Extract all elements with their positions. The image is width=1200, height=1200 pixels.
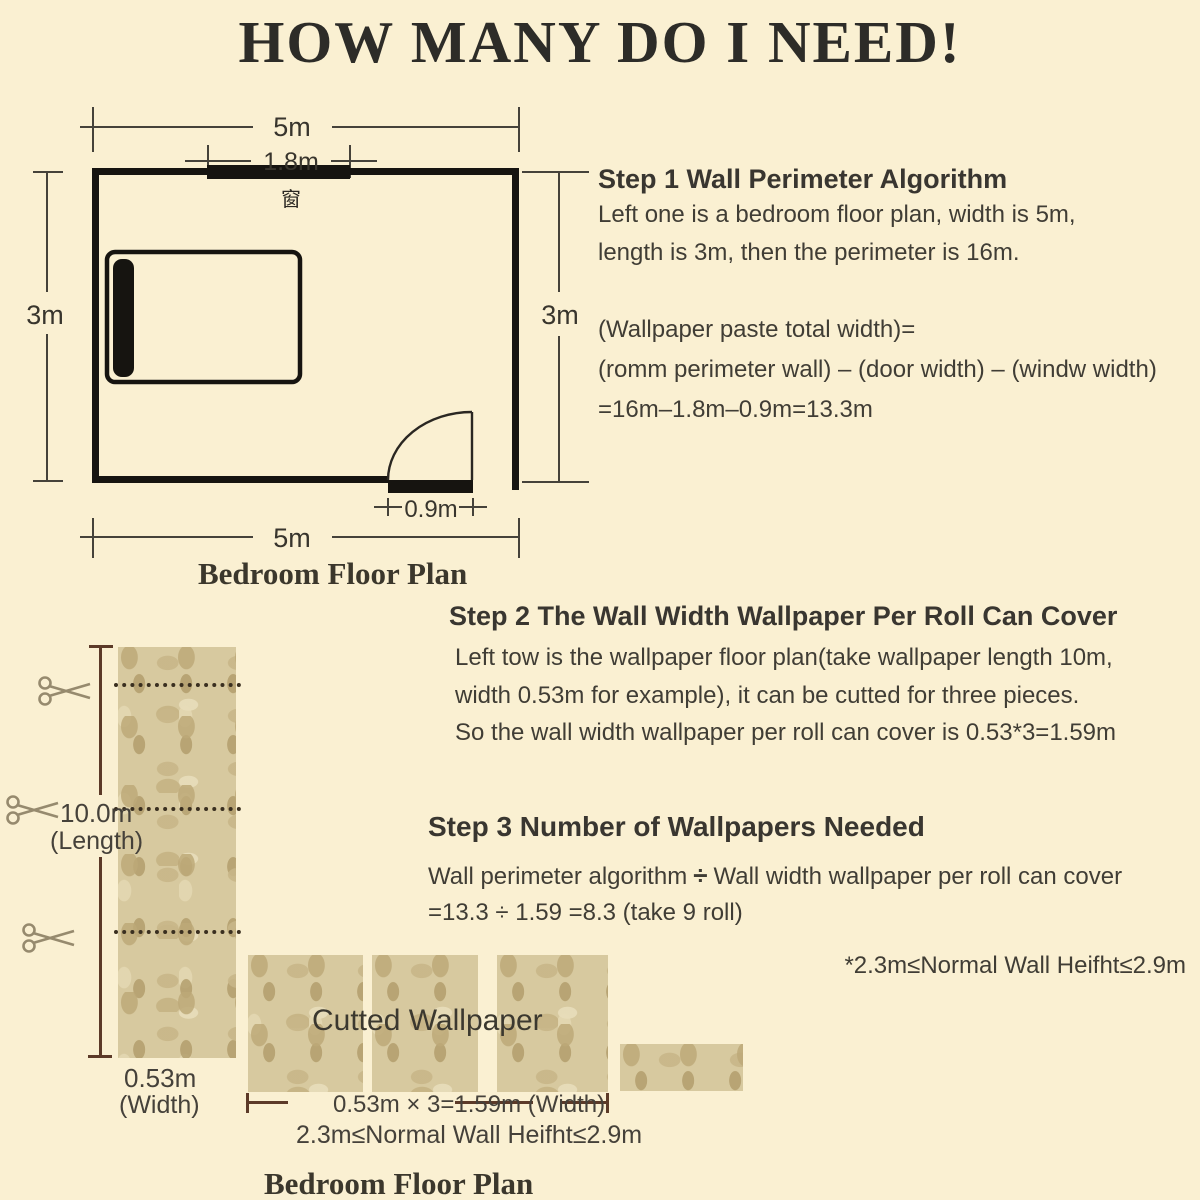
step1-heading: Step 1 Wall Perimeter Algorithm xyxy=(598,164,1007,195)
scissors-icon xyxy=(36,672,94,710)
scissors-icon xyxy=(4,791,62,829)
wall-right xyxy=(512,168,519,490)
room-walls xyxy=(92,165,519,493)
roll-width-sub: (Width) xyxy=(119,1091,200,1120)
step2-line2: width 0.53m for example), it can be cutt… xyxy=(455,682,1079,710)
floorplan-caption: Bedroom Floor Plan xyxy=(198,556,467,592)
step3-heading: Step 3 Number of Wallpapers Needed xyxy=(428,811,925,843)
door-arc xyxy=(388,412,472,480)
cut-dim-seg-left xyxy=(246,1101,288,1104)
step3-line1-pre: Wall perimeter algorithm xyxy=(428,863,687,890)
wall-bottom xyxy=(92,476,388,483)
step2-line1: Left tow is the wallpaper floor plan(tak… xyxy=(455,644,1113,672)
length-dim-seg-top xyxy=(99,647,102,795)
length-dim-cap-bottom xyxy=(88,1055,112,1058)
step3-line1: Wall perimeter algorithm÷Wall width wall… xyxy=(428,860,1122,891)
step1-formula2: (romm perimeter wall) – (door width) – (… xyxy=(598,356,1157,384)
scissors-icon xyxy=(20,919,78,957)
dim-label-door-0-9m: 0.9m xyxy=(404,496,457,523)
cut-line-3 xyxy=(114,930,241,934)
step3-line2: =13.3 ÷ 1.59 =8.3 (take 9 roll) xyxy=(428,899,743,927)
cut-width-formula: 0.53m × 3=1.59m (Width) xyxy=(333,1091,605,1119)
dim-label-top-5m: 5m xyxy=(273,112,311,142)
step2-heading: Step 2 The Wall Width Wallpaper Per Roll… xyxy=(449,601,1117,632)
floor-plan-diagram: 窗 5m 1.8m 3m 3m 0.9m 5m xyxy=(0,0,600,600)
bottom-caption: Bedroom Floor Plan xyxy=(264,1166,533,1200)
door-sill-bar xyxy=(388,480,473,493)
roll-width-label: 0.53m xyxy=(124,1063,196,1094)
cut-piece-remnant xyxy=(620,1044,743,1091)
dim-label-window-1-8m: 1.8m xyxy=(263,148,319,176)
wall-height-note: 2.3m≤Normal Wall Heifht≤2.9m xyxy=(296,1121,642,1150)
bed-outline xyxy=(107,252,300,382)
dim-label-bottom-5m: 5m xyxy=(273,523,311,553)
cut-line-1 xyxy=(114,683,241,687)
divide-sign: ÷ xyxy=(693,860,707,890)
dim-label-left-3m: 3m xyxy=(26,300,64,330)
door-swing xyxy=(388,412,472,480)
step1-line1: Left one is a bedroom floor plan, width … xyxy=(598,201,1076,229)
cut-wallpaper-overlay-label: Cutted Wallpaper xyxy=(312,1004,543,1038)
step3-line1-post: Wall width wallpaper per roll can cover xyxy=(713,863,1122,890)
step1-line2: length is 3m, then the perimeter is 16m. xyxy=(598,239,1020,267)
wall-left xyxy=(92,168,99,483)
bed xyxy=(107,252,300,382)
cut-dim-cap-right xyxy=(606,1093,609,1113)
cut-line-2 xyxy=(114,807,241,811)
step1-formula3: =16m–1.8m–0.9m=13.3m xyxy=(598,396,873,424)
roll-length-label: 10.0m xyxy=(60,798,132,829)
length-dim-seg-bottom xyxy=(99,857,102,1057)
step1-formula1: (Wallpaper paste total width)= xyxy=(598,316,915,344)
step2-line3: So the wall width wallpaper per roll can… xyxy=(455,719,1116,747)
bed-pillow xyxy=(113,259,134,377)
dim-label-right-3m: 3m xyxy=(541,300,579,330)
step3-note: *2.3m≤Normal Wall Heifht≤2.9m xyxy=(844,952,1186,980)
infographic-canvas: HOW MANY DO I NEED! 窗 xyxy=(0,0,1200,1200)
window-label: 窗 xyxy=(281,188,301,211)
roll-length-sub: (Length) xyxy=(50,827,143,856)
